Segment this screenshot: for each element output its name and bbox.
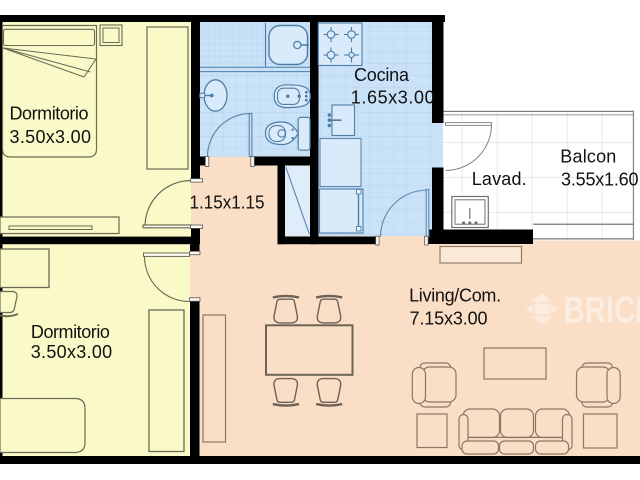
svg-text:1.65x3.00: 1.65x3.00	[351, 87, 435, 107]
svg-text:1.15x1.15: 1.15x1.15	[190, 193, 265, 213]
svg-text:Balcon: Balcon	[560, 147, 616, 167]
svg-text:Dormitorio: Dormitorio	[31, 322, 110, 342]
svg-text:Living/Com.: Living/Com.	[409, 286, 501, 306]
svg-text:3.50x3.00: 3.50x3.00	[10, 127, 92, 147]
svg-text:Dormitorio: Dormitorio	[10, 103, 89, 123]
svg-text:3.55x1.60: 3.55x1.60	[561, 169, 639, 189]
svg-text:Cocina: Cocina	[354, 65, 410, 85]
svg-text:3.50x3.00: 3.50x3.00	[31, 342, 113, 362]
svg-text:7.15x3.00: 7.15x3.00	[410, 309, 488, 329]
svg-text:BRICK: BRICK	[564, 290, 640, 331]
svg-text:Lavad.: Lavad.	[472, 169, 527, 189]
